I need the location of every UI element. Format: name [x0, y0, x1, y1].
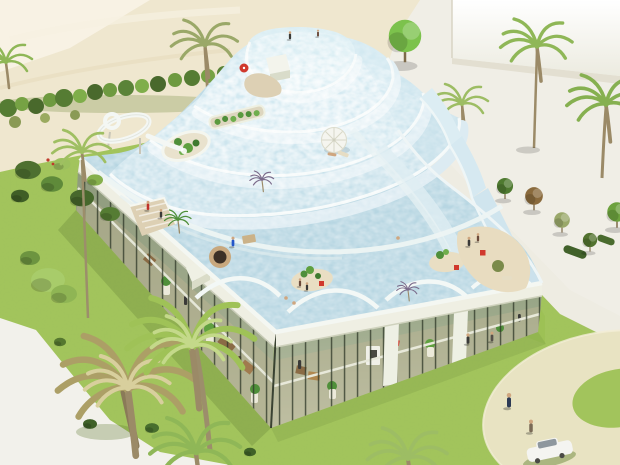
- swimmer: [284, 296, 288, 300]
- island-bush: [492, 260, 504, 272]
- flower: [46, 158, 49, 161]
- flower: [52, 163, 55, 166]
- red-chair: [319, 281, 324, 286]
- island-plant: [315, 273, 321, 279]
- rendering-figure: [0, 0, 620, 465]
- island-plant: [443, 249, 449, 255]
- red-chair: [454, 265, 459, 270]
- island-plant: [306, 266, 314, 274]
- lounger: [502, 276, 512, 280]
- swimmer: [396, 236, 400, 240]
- island-plant: [436, 251, 444, 259]
- rendering-canvas: [0, 0, 620, 465]
- swimmer: [292, 301, 296, 305]
- red-chair: [480, 250, 486, 256]
- spa-circle: [209, 246, 231, 268]
